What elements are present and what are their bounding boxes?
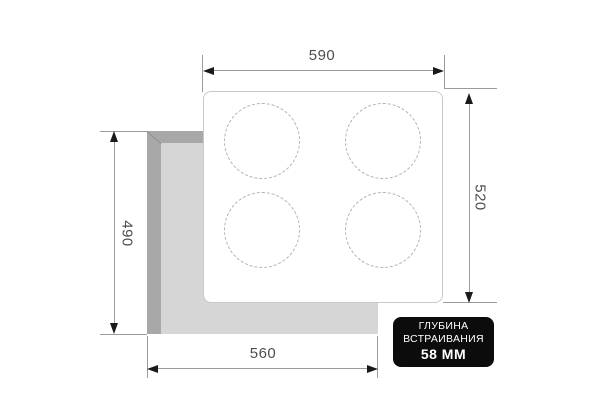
burner-zone-circle-top-right — [345, 103, 421, 179]
dim-490-arrow-down — [110, 323, 118, 334]
dim-490-label: 490 — [119, 211, 136, 257]
dim-590-arrow-left — [203, 67, 214, 75]
dim-520-label: 520 — [472, 175, 489, 221]
dim-520-arrow-up — [465, 93, 473, 104]
dim-490-line — [114, 136, 115, 329]
dim-590-arrow-right — [433, 67, 444, 75]
dim-520-arrow-down — [465, 292, 473, 303]
dim-590-label: 590 — [299, 47, 345, 64]
installation-depth-badge: ГЛУБИНА ВСТРАИВАНИЯ 58 ММ — [393, 317, 494, 367]
dim-560-label: 560 — [240, 345, 286, 362]
dim-520-extension-top — [444, 88, 497, 89]
dim-490-arrow-up — [110, 131, 118, 142]
dim-560-arrow-right — [367, 365, 378, 373]
dim-560-line — [152, 368, 373, 369]
dim-560-arrow-left — [147, 365, 158, 373]
dim-520-line — [469, 98, 470, 298]
dim-490-extension-bottom — [100, 334, 147, 335]
badge-line1: ГЛУБИНА — [419, 320, 469, 333]
burner-zone-circle-top-left — [224, 103, 300, 179]
dim-490-extension-top — [100, 131, 147, 132]
diagram-canvas: 590 520 490 560 ГЛУБИНА ВСТРАИВАНИЯ 58 М… — [0, 0, 600, 420]
dim-590-extension-right — [444, 55, 445, 89]
dim-590-line — [207, 70, 440, 71]
burner-zone-circle-bottom-left — [224, 192, 300, 268]
burner-zone-circle-bottom-right — [345, 192, 421, 268]
badge-line2: ВСТРАИВАНИЯ — [403, 333, 484, 346]
badge-depth-value: 58 ММ — [421, 346, 466, 364]
